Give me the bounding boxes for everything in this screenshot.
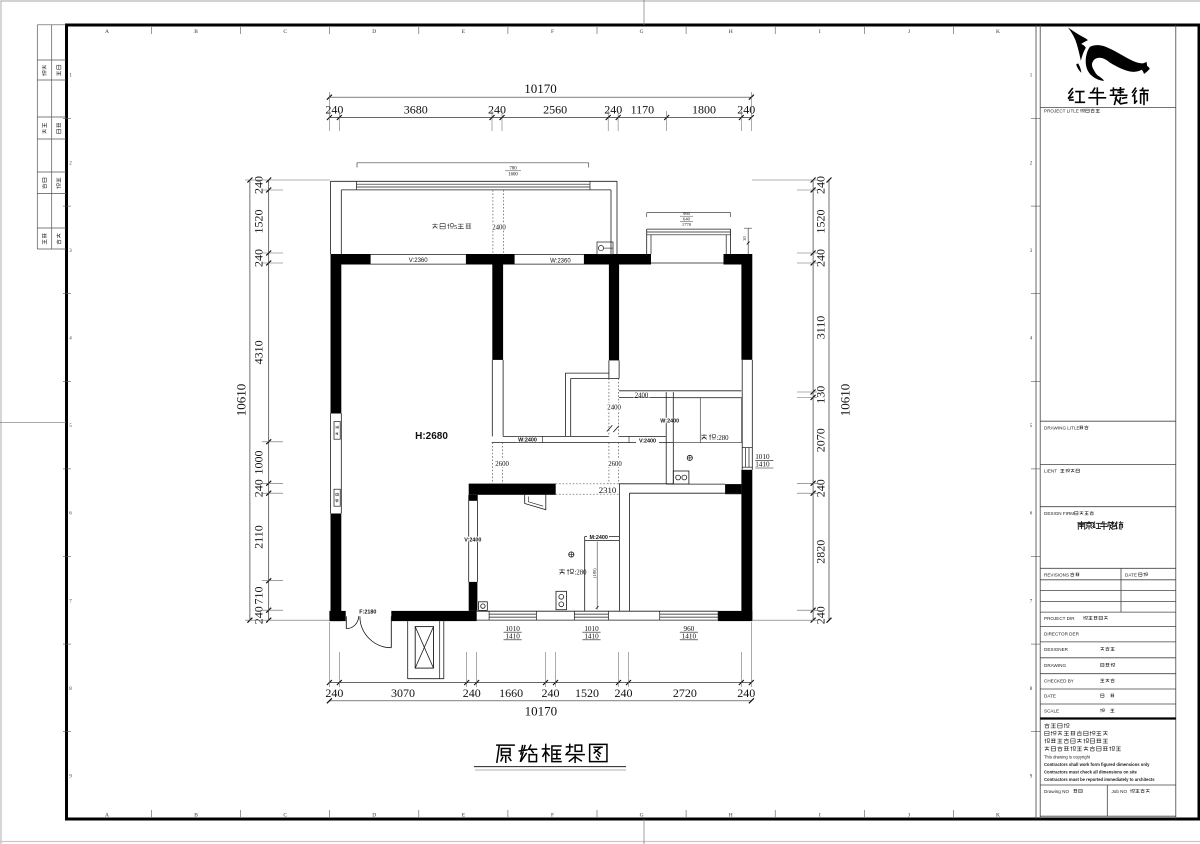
svg-text:3070: 3070 [391,686,415,700]
svg-text:240: 240 [252,606,266,624]
svg-text:1600: 1600 [508,172,518,177]
svg-text:D: D [372,813,376,819]
svg-text:240: 240 [814,479,828,497]
svg-text:3680: 3680 [404,103,428,117]
svg-text:G: G [640,813,644,819]
svg-text:240: 240 [252,249,266,267]
svg-text:240: 240 [737,686,755,700]
svg-text:D: D [372,29,376,35]
svg-text:C: C [283,813,287,819]
svg-text:2070: 2070 [814,428,828,452]
svg-text:V:2400: V:2400 [639,439,656,445]
svg-text:2600: 2600 [495,461,509,468]
svg-text:REVISIONS: REVISIONS [1044,572,1069,577]
svg-text:DESIGNER: DESIGNER [1044,647,1069,652]
svg-text:This drawing is copyright: This drawing is copyright [1044,755,1091,760]
svg-text:2820: 2820 [814,540,828,564]
svg-text:1520: 1520 [814,210,828,234]
svg-text:1170: 1170 [631,103,655,117]
svg-text:2400: 2400 [607,405,621,412]
svg-text:10170: 10170 [525,704,558,719]
svg-text:W:2400: W:2400 [660,419,679,425]
svg-text:10610: 10610 [838,384,853,417]
svg-text:Contractors shall work form fi: Contractors shall work form figured dime… [1044,762,1150,767]
svg-text:H: H [729,29,733,35]
svg-text:PROJECT DIR: PROJECT DIR [1044,616,1075,621]
svg-text:2400: 2400 [492,224,506,231]
svg-text:H:2680: H:2680 [415,431,448,442]
svg-text:2110: 2110 [252,525,266,549]
svg-text:F: F [551,29,554,35]
svg-text:240: 240 [814,249,828,267]
svg-text:Job NO: Job NO [1112,789,1128,794]
svg-text:4310: 4310 [252,340,266,364]
svg-text:DRAWING: DRAWING [1044,663,1066,668]
svg-text:B: B [194,29,198,35]
svg-text:5: 5 [454,224,457,231]
svg-text:F: F [551,813,554,819]
svg-text:Contractors must be reported i: Contractors must be reported immediately… [1044,777,1155,782]
svg-text:1520: 1520 [575,686,599,700]
svg-text:960: 960 [683,211,691,216]
svg-text:1410: 1410 [755,461,770,469]
svg-text:CHECKED BY: CHECKED BY [1044,678,1074,683]
svg-text:M:2400: M:2400 [590,535,608,541]
svg-text:F:2180: F:2180 [359,610,376,616]
svg-text:V:2360: V:2360 [409,258,428,264]
svg-text:3110: 3110 [814,316,828,340]
svg-text:V:2400: V:2400 [464,537,481,543]
svg-text:H: H [729,813,733,819]
svg-text:1410: 1410 [584,632,599,640]
svg-text:240: 240 [463,686,481,700]
svg-text:I: I [819,813,821,819]
svg-text:10170: 10170 [524,81,557,96]
svg-text:240: 240 [814,176,828,194]
svg-text:1000: 1000 [252,451,266,475]
svg-text:240: 240 [488,103,506,117]
svg-text:1660: 1660 [499,686,523,700]
svg-text:240: 240 [615,686,633,700]
svg-text:240: 240 [814,606,828,624]
svg-text:Contractors must check all dim: Contractors must check all dimensions on… [1044,770,1138,775]
svg-text:240: 240 [604,103,622,117]
svg-text:2720: 2720 [673,686,697,700]
svg-text:G: G [640,29,644,35]
svg-text:I: I [819,29,821,35]
svg-text:1800: 1800 [692,103,716,117]
svg-text:DATE: DATE [1044,693,1056,698]
svg-text:DATE: DATE [1125,572,1137,577]
svg-text:A: A [105,29,109,35]
svg-text:Drawing NO: Drawing NO [1044,789,1069,794]
svg-text:DIRECTOR DER: DIRECTOR DER [1044,631,1080,636]
svg-text::280: :280 [575,570,588,577]
svg-text:2310: 2310 [599,485,617,495]
svg-text:1770: 1770 [682,222,692,227]
svg-text:30: 30 [742,236,747,240]
svg-text:2560: 2560 [543,103,567,117]
svg-text:710: 710 [252,587,266,605]
svg-text:2600: 2600 [608,461,622,468]
svg-text:1520: 1520 [252,210,266,234]
svg-text:240: 240 [252,479,266,497]
svg-text:W:2400: W:2400 [518,438,537,444]
svg-text:K: K [996,813,1000,819]
svg-text:240: 240 [325,686,343,700]
svg-text::280: :280 [717,435,730,442]
svg-text:240: 240 [252,176,266,194]
svg-text:K: K [996,29,1000,35]
svg-text:1410: 1410 [682,632,697,640]
svg-text:W:2360: W:2360 [550,258,571,264]
svg-text:10610: 10610 [234,384,249,417]
svg-text:2400: 2400 [635,393,649,400]
svg-text:A: A [105,813,109,819]
svg-text:130: 130 [814,386,828,404]
svg-text:240: 240 [542,686,560,700]
svg-text:B: B [194,813,198,819]
svg-text:SCALE: SCALE [1044,708,1059,713]
svg-text:240: 240 [325,103,343,117]
svg-text:1410: 1410 [505,632,520,640]
svg-text:PROJECT LITLE: PROJECT LITLE [1044,109,1079,114]
svg-text:DESIGN FIRM: DESIGN FIRM [1044,511,1074,516]
svg-text:640: 640 [683,217,691,222]
svg-text:DRAWING LITLE: DRAWING LITLE [1044,425,1080,430]
svg-text:240: 240 [737,103,755,117]
svg-text:C: C [283,29,287,35]
svg-text:(180): (180) [592,568,597,578]
svg-text:LIENT: LIENT [1044,469,1057,474]
